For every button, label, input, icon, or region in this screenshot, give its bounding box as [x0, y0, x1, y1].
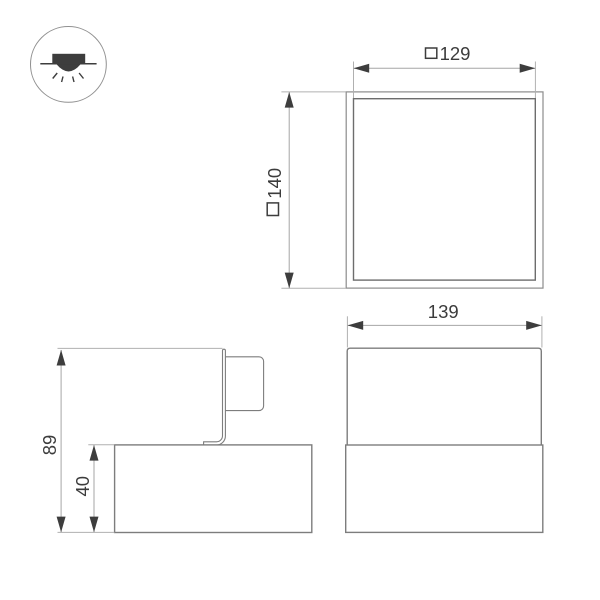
- svg-text:40: 40: [72, 476, 93, 497]
- svg-text:89: 89: [39, 435, 60, 456]
- svg-text:140: 140: [264, 168, 285, 199]
- svg-text:129: 129: [440, 43, 471, 64]
- svg-text:139: 139: [428, 301, 459, 322]
